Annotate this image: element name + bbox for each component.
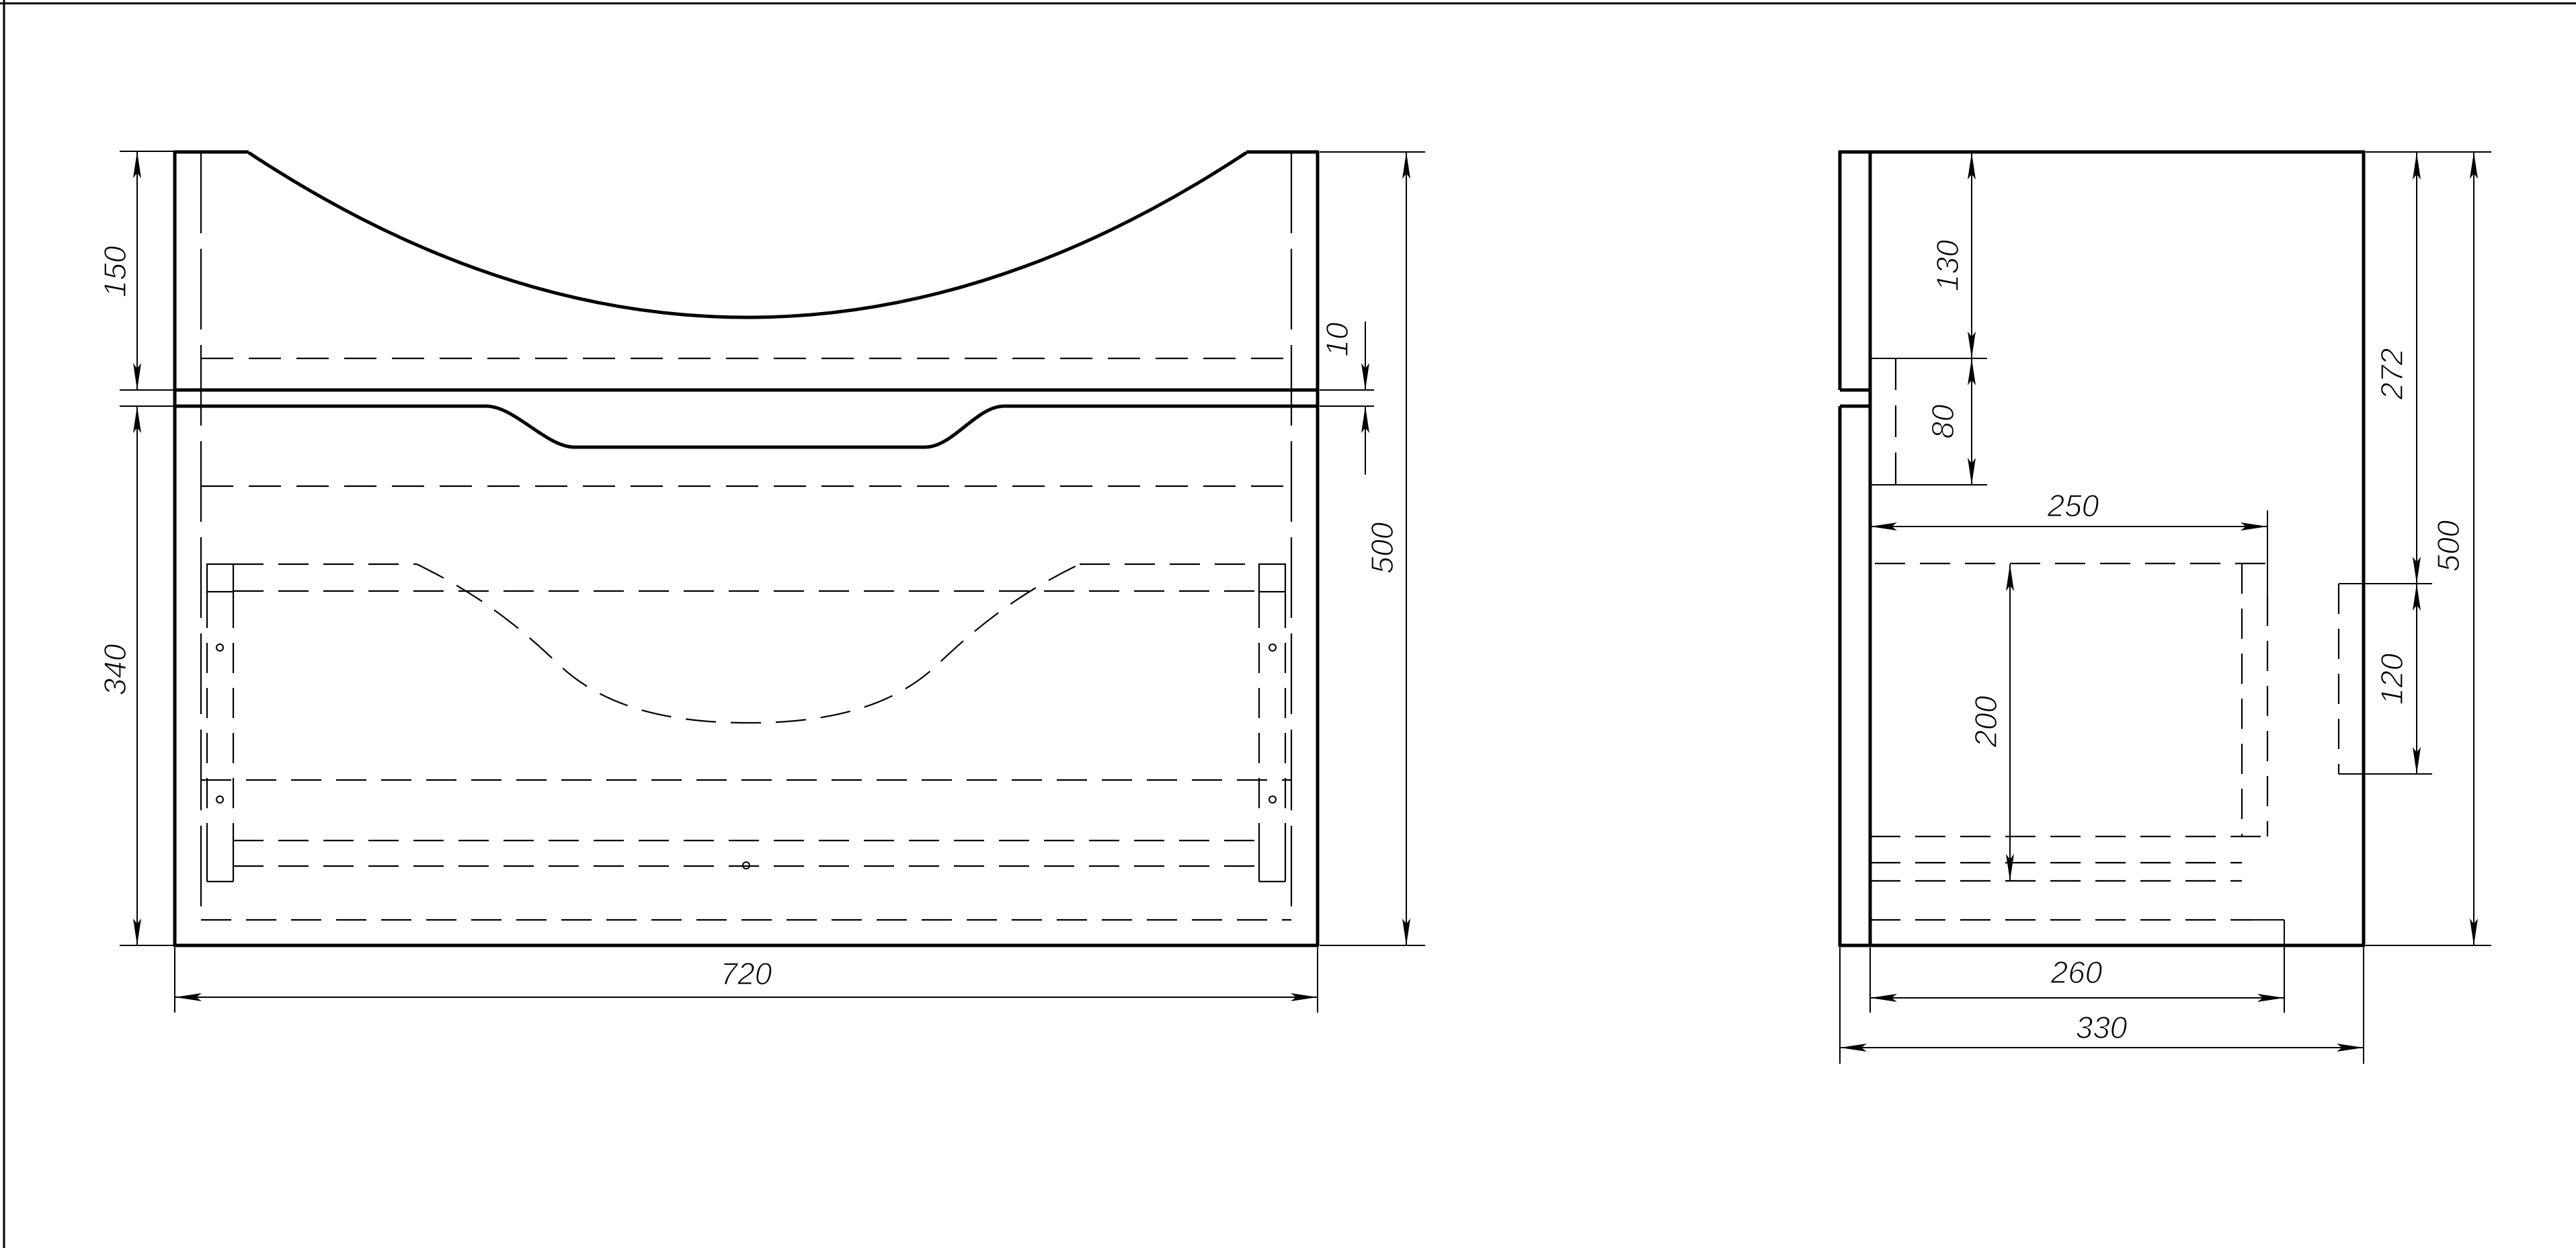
svg-text:500: 500 bbox=[2431, 520, 2466, 572]
svg-text:250: 250 bbox=[2047, 488, 2099, 523]
svg-text:340: 340 bbox=[97, 643, 132, 695]
svg-text:10: 10 bbox=[1320, 322, 1355, 357]
svg-text:720: 720 bbox=[721, 956, 772, 991]
svg-text:330: 330 bbox=[2076, 1010, 2128, 1045]
svg-text:120: 120 bbox=[2374, 653, 2409, 705]
svg-text:80: 80 bbox=[1925, 404, 1960, 439]
svg-text:150: 150 bbox=[97, 245, 132, 297]
svg-text:500: 500 bbox=[1365, 522, 1400, 574]
svg-text:130: 130 bbox=[1930, 239, 1965, 291]
svg-text:200: 200 bbox=[1968, 695, 2003, 748]
svg-text:272: 272 bbox=[2374, 348, 2409, 401]
svg-text:260: 260 bbox=[2050, 955, 2103, 990]
